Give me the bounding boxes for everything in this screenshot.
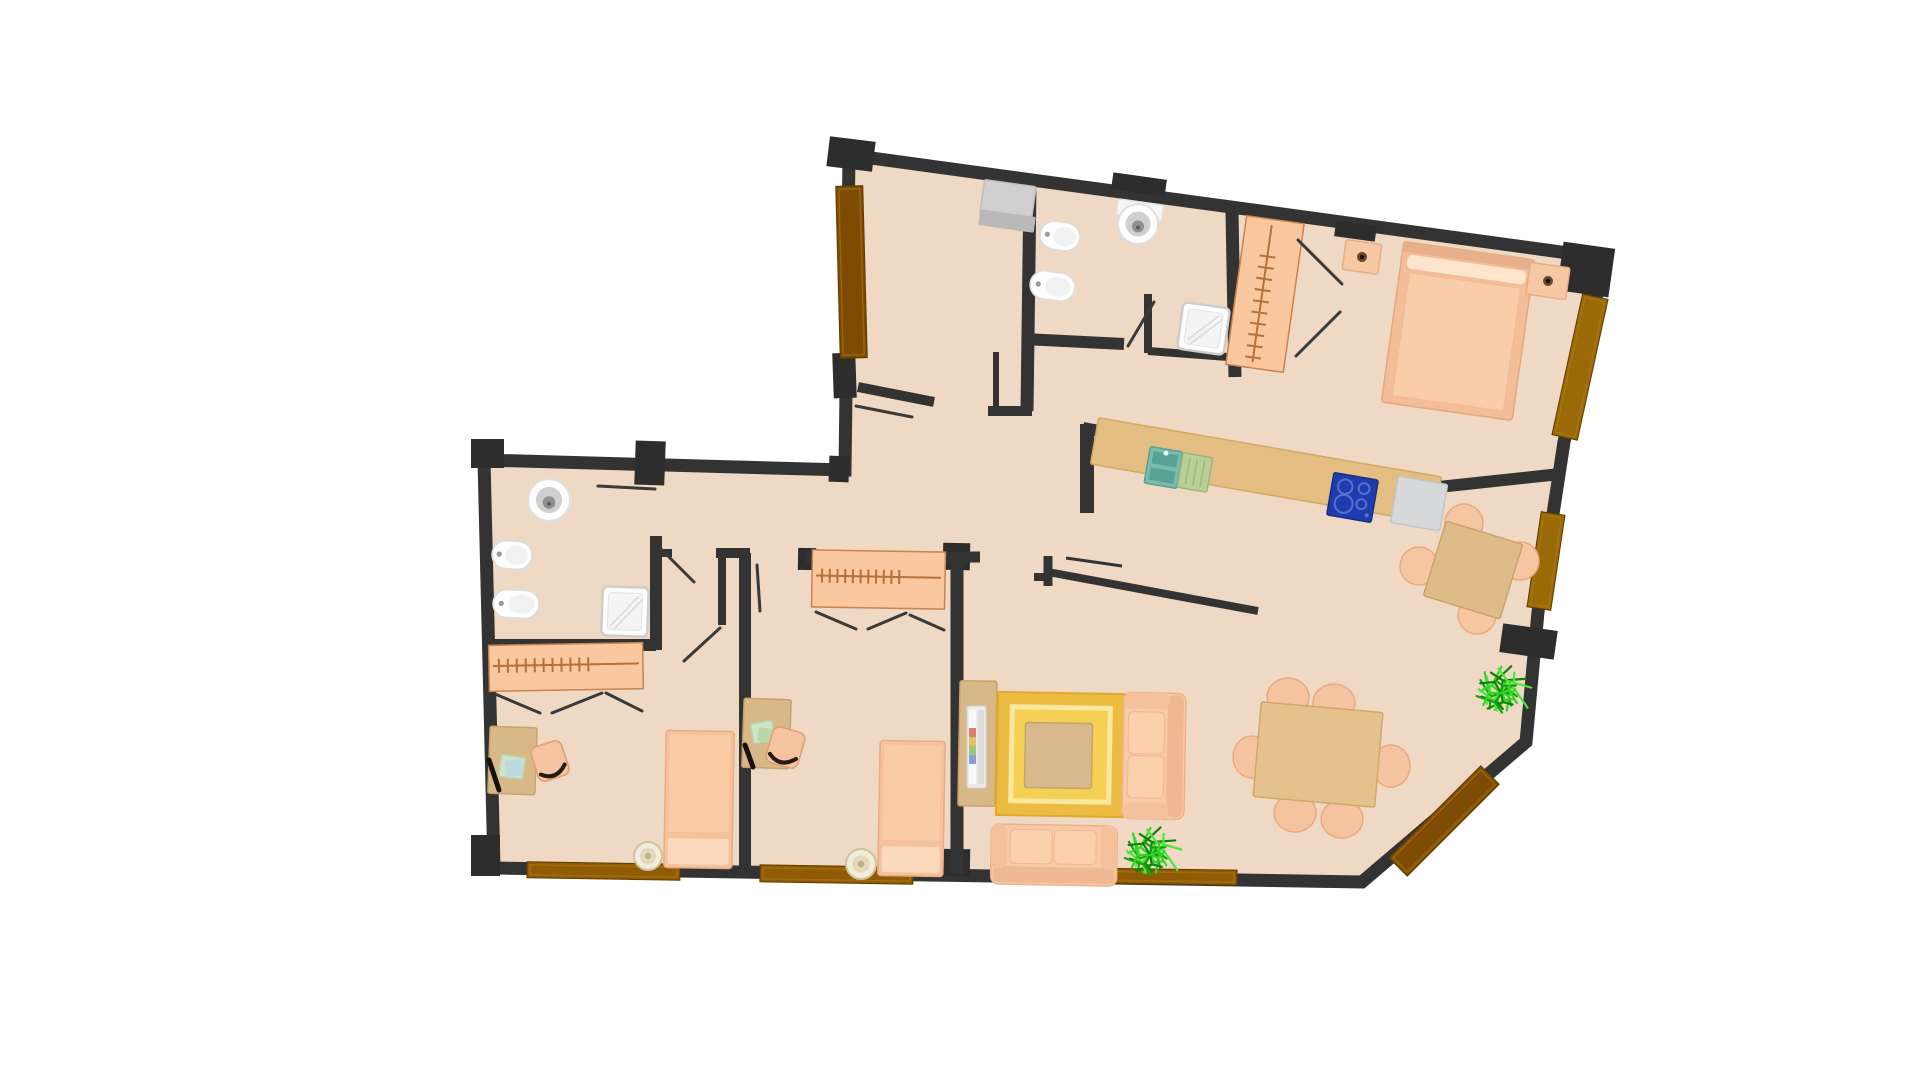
cooktop [1327,472,1379,522]
wardrobe-bedroom3 [812,550,946,609]
shower-tray-bathroom2 [601,586,649,637]
pillar-left-top-wall [634,440,666,485]
dining-table [1253,702,1383,807]
television [967,706,986,788]
loveseat-side [1122,692,1186,819]
pouf-bedroom3 [846,849,876,879]
coffee-table [1024,722,1092,788]
pillar-corner-entry [826,136,875,171]
single-bed-bedroom2 [664,730,734,868]
single-bed-bedroom3 [878,740,945,876]
pouf-bedroom2 [634,842,662,870]
nightstand-right [1526,262,1570,299]
bidet-bathroom2 [493,589,540,619]
paper-bedroom2-b [505,759,523,777]
drainboard [1177,453,1213,493]
pillar-corner-left-top [471,439,504,468]
pillar-entry-door-end [832,353,857,399]
threshold-entry-door [836,186,867,359]
pillar-corner-bottom-left [471,835,500,876]
shower-tray-bathroom1 [1177,302,1230,355]
floor-plan-viewport [0,0,1920,1080]
dishwasher [1390,476,1447,531]
washbasin-bathroom2 [528,479,570,521]
wardrobe-bedroom2 [489,643,644,692]
loveseat-bottom [990,824,1117,886]
washbasin-bathroom1 [1118,204,1158,244]
pillar-entry-step [829,456,850,483]
wall-bathroom1-bottom [1024,339,1124,344]
double-bed [1381,242,1534,421]
toilet-bathroom2 [491,540,533,571]
nightstand-left [1342,240,1382,275]
kitchen-sink [1144,446,1183,488]
floor-plan-svg [0,0,1920,1080]
